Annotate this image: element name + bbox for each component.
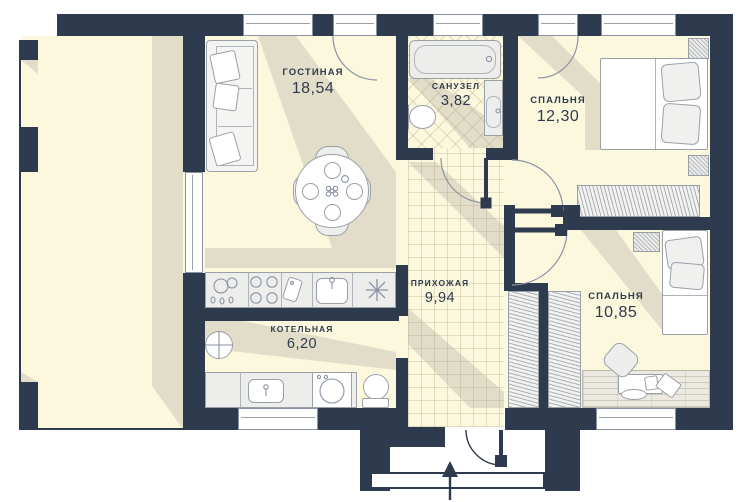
- room-label-bedroom1: СПАЛЬНЯ 12,30: [506, 95, 610, 126]
- wall-hall-bedroom2: [539, 291, 548, 408]
- window: [238, 408, 318, 430]
- plate: [324, 162, 341, 179]
- bedroom1-wardrobe: [577, 185, 700, 217]
- boiler-sink: [248, 379, 284, 403]
- wall-right: [710, 14, 733, 430]
- kitchen-counter: [205, 272, 396, 308]
- terrace-edge-line: [19, 428, 205, 430]
- counter-divider: [240, 373, 241, 407]
- plate: [346, 183, 363, 200]
- room-label-hallway: ПРИХОЖАЯ 9,94: [392, 278, 488, 306]
- wall-hall-bedroom2: [504, 283, 548, 291]
- wall-bathroom-bottom: [396, 148, 433, 160]
- room-area: 3,82: [413, 93, 499, 109]
- plate: [324, 204, 341, 221]
- room-name: ПРИХОЖАЯ: [392, 278, 488, 288]
- casement-window: [538, 14, 578, 36]
- bed-blanket-line: [663, 295, 707, 296]
- bowl: [621, 389, 647, 400]
- pillow: [661, 103, 702, 146]
- washing-machine: [312, 372, 352, 408]
- floor-plan: ГОСТИНАЯ 18,54 САНУЗЕЛ 3,82 СПАЛЬНЯ 12,3…: [0, 0, 752, 502]
- wall-door-post: [504, 205, 515, 291]
- toilet-tank: [362, 398, 389, 408]
- boiler-unit: [205, 331, 233, 359]
- room-area: 12,30: [506, 108, 610, 126]
- wall-porch-right: [545, 430, 580, 491]
- terrace-pier: [19, 40, 38, 60]
- terrace-pier: [19, 382, 38, 428]
- wall-terrace-living: [183, 36, 205, 172]
- room-name: ГОСТИНАЯ: [253, 67, 373, 78]
- room-area: 10,85: [564, 304, 668, 322]
- hallway-wardrobe: [508, 291, 539, 408]
- bedroom2-nightstand: [633, 232, 660, 252]
- room-label-bedroom2: СПАЛЬНЯ 10,85: [564, 291, 668, 322]
- balcony-door: [333, 14, 377, 36]
- terrace-glazing: [185, 172, 203, 273]
- room-name: КОТЕЛЬНАЯ: [250, 324, 354, 334]
- floor-terrace-lower: [21, 408, 183, 429]
- pillow: [669, 262, 705, 291]
- bathtub-inner: [414, 45, 496, 74]
- room-label-boiler: КОТЕЛЬНАЯ 6,20: [250, 324, 354, 352]
- room-name: СПАЛЬНЯ: [564, 291, 668, 302]
- wall-bedroom-divider: [563, 217, 710, 230]
- window: [601, 14, 676, 36]
- room-label-living: ГОСТИНАЯ 18,54: [253, 67, 373, 98]
- bed-blanket-line: [655, 59, 656, 149]
- counter-divider: [352, 273, 353, 307]
- terrace-pier: [19, 127, 38, 172]
- porch-step: [370, 472, 545, 489]
- room-name: САНУЗЕЛ: [413, 81, 499, 91]
- wall-kitchen-hall: [396, 358, 408, 408]
- terrace-edge-line: [19, 40, 21, 430]
- wall-stub: [563, 205, 580, 217]
- bedroom1-nightstand-bottom: [688, 155, 709, 176]
- counter-divider: [281, 273, 282, 307]
- counter-divider: [248, 273, 249, 307]
- window: [596, 408, 676, 430]
- room-area: 9,94: [392, 290, 488, 306]
- room-area: 6,20: [250, 336, 354, 352]
- kitchen-sink: [316, 278, 348, 304]
- wall-terrace-kitchen: [183, 273, 205, 430]
- wall-porch-stub: [388, 427, 445, 447]
- room-area: 18,54: [253, 80, 373, 98]
- toilet-bowl: [363, 374, 389, 400]
- sofa-cushion-line: [218, 126, 252, 127]
- room-name: СПАЛЬНЯ: [506, 95, 610, 106]
- pillow: [660, 61, 701, 102]
- window: [243, 14, 313, 36]
- sofa-pillow: [212, 82, 239, 111]
- plate: [302, 183, 319, 200]
- window: [433, 14, 483, 36]
- bedroom1-nightstand-top: [688, 38, 709, 59]
- wall-bathroom-left: [396, 36, 408, 160]
- counter-divider: [312, 273, 313, 307]
- wall-bathroom-bottom: [486, 148, 503, 160]
- wall-kitchen-boiler: [183, 308, 399, 321]
- room-label-bathroom: САНУЗЕЛ 3,82: [413, 81, 499, 109]
